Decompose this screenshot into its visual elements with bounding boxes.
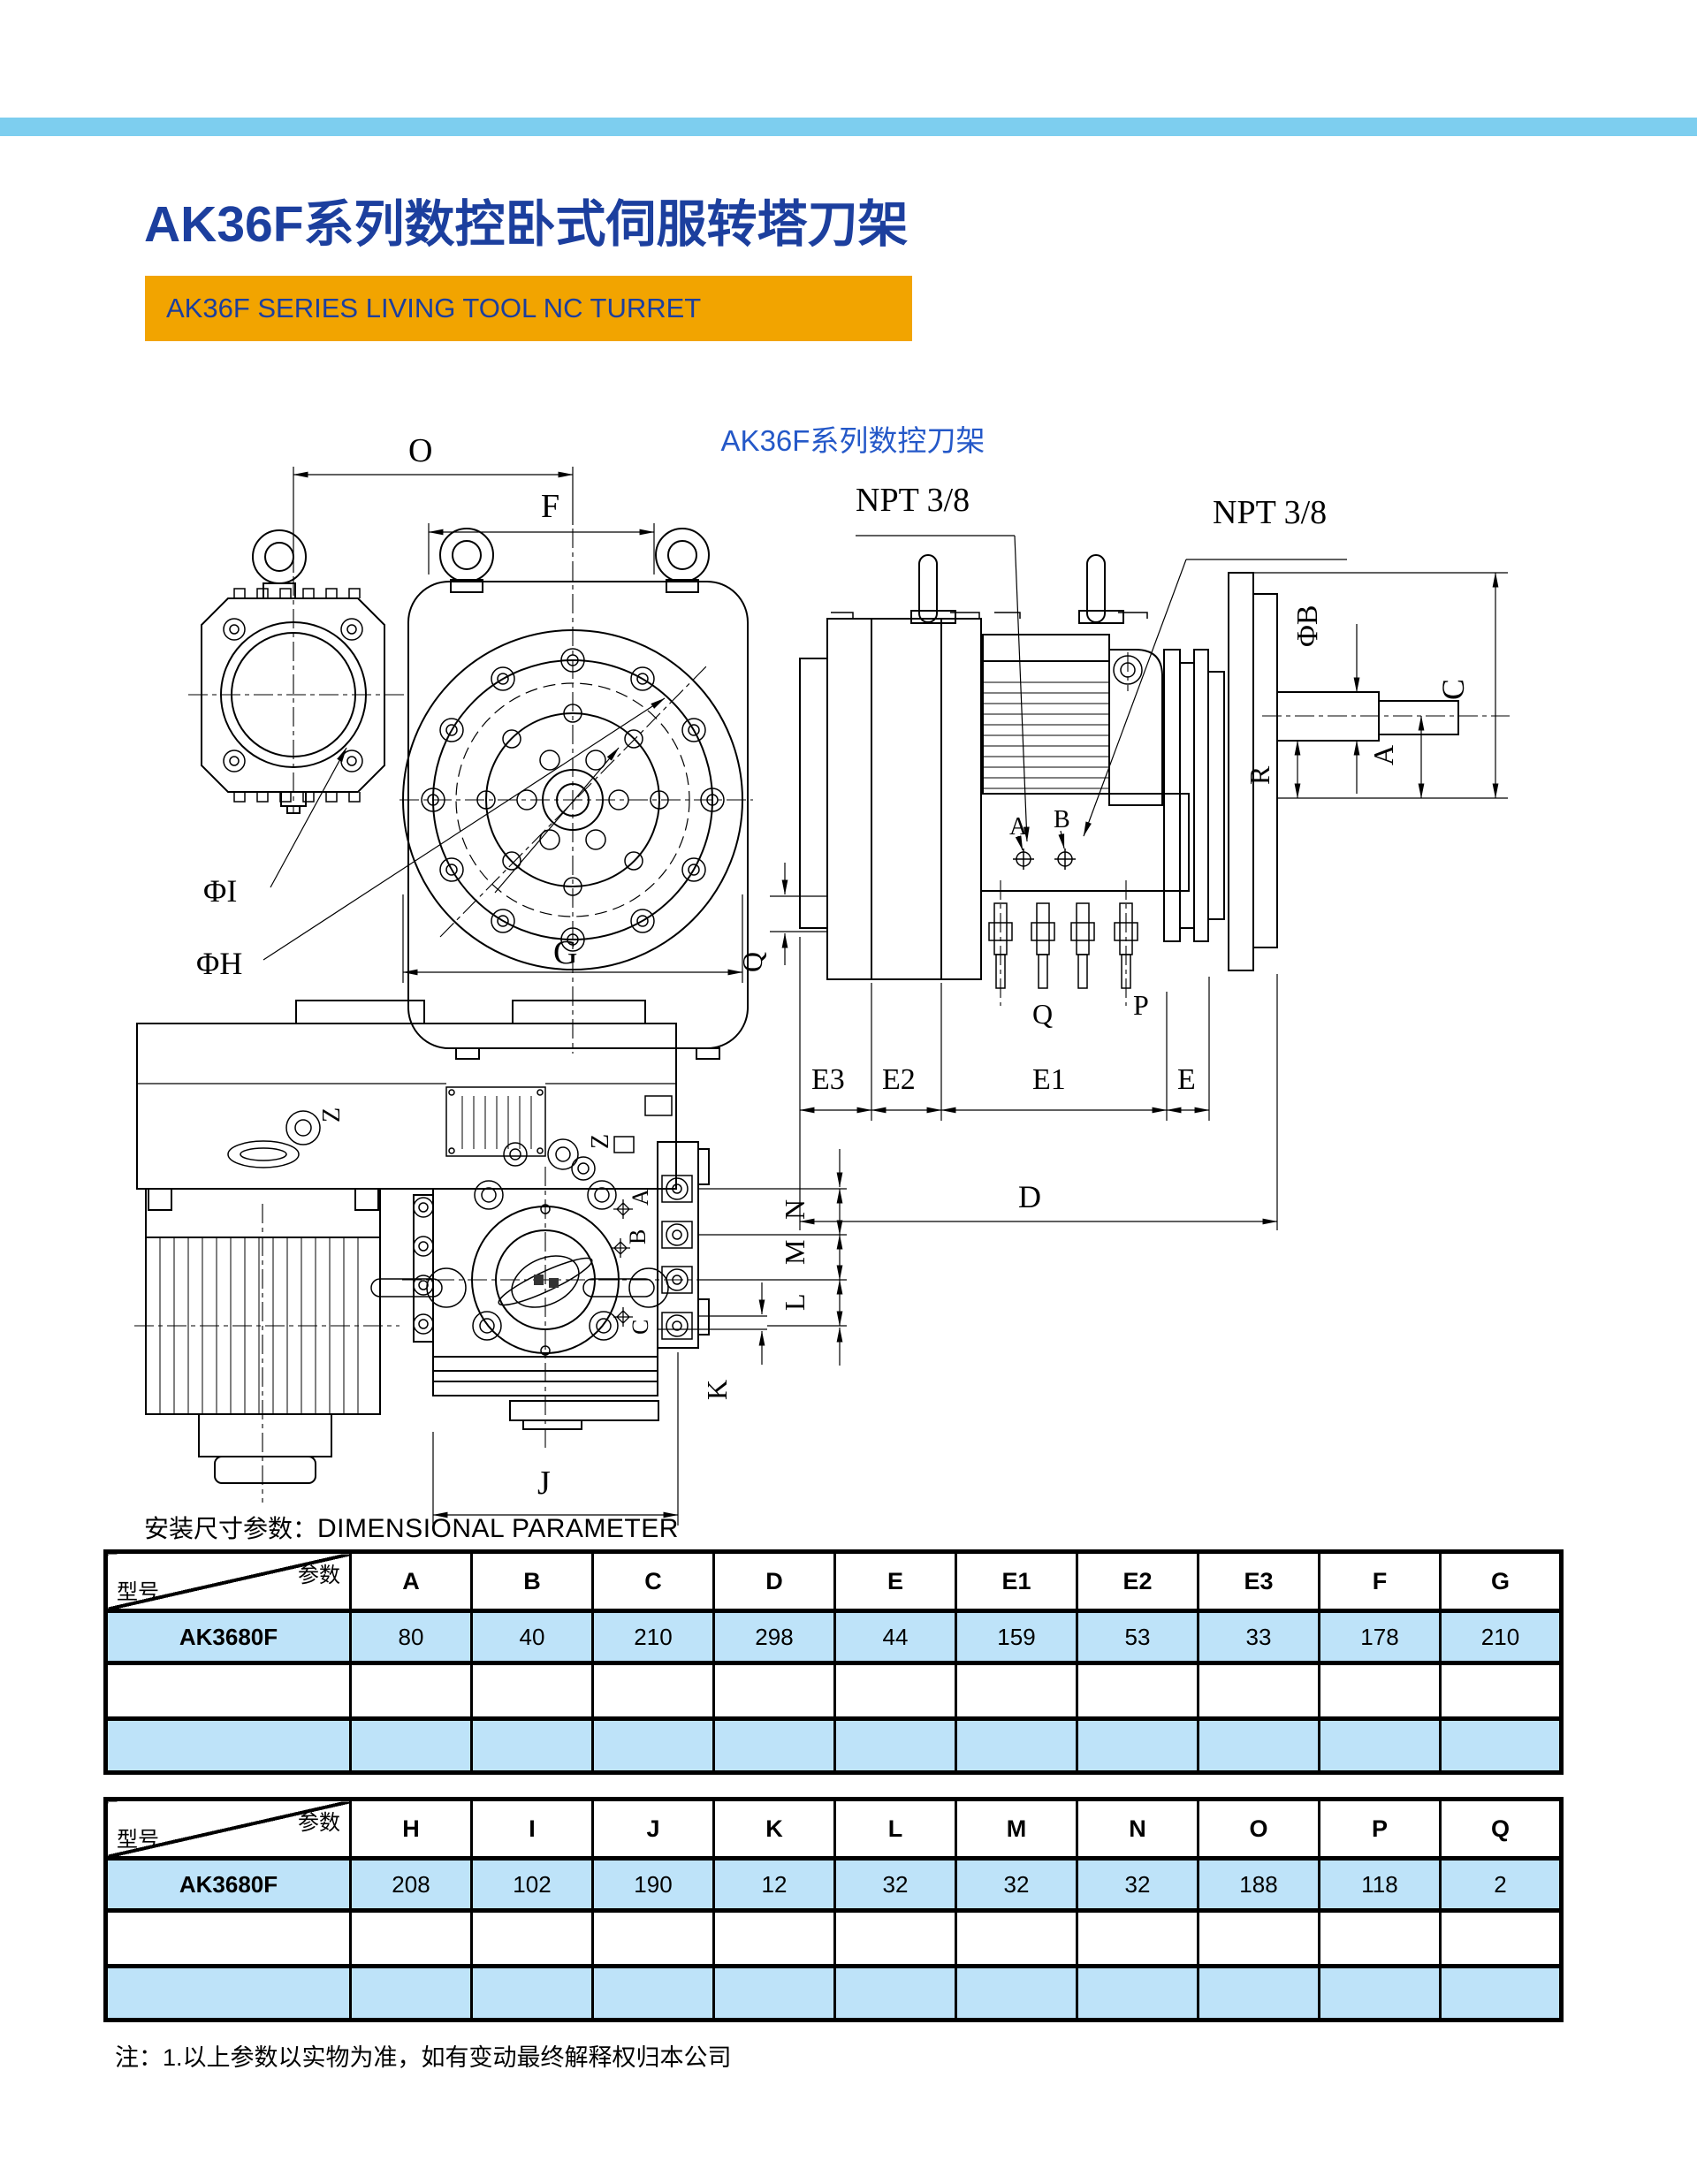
empty-cell [593,1967,714,2020]
col-header: H [351,1800,472,1859]
empty-cell [1199,1967,1320,2020]
empty-cell [472,1719,593,1773]
plan-view: Z [134,1001,847,1526]
value-cell: 2 [1441,1859,1562,1911]
corner-label-param: 参数 [298,1557,340,1588]
empty-cell [835,1967,956,2020]
value-cell: 33 [1199,1611,1320,1663]
dim-label-Z-upper: Z [318,1107,346,1122]
tool-station-bolts [662,1176,692,1339]
empty-cell [1441,1663,1562,1719]
dim-label-R: R [1244,765,1275,785]
value-cell: 44 [835,1611,956,1663]
dimension-table-1: 参数 型号 A B C D E E1 E2 E3 F G AK3680F 80 … [103,1549,1564,1775]
clamping-studs [989,903,1138,988]
model-cell: AK3680F [106,1611,351,1663]
col-header: E [835,1552,956,1611]
empty-cell [835,1911,956,1967]
dim-label-phiB: ΦB [1291,605,1324,647]
empty-cell [593,1719,714,1773]
empty-cell [472,1663,593,1719]
empty-cell [1199,1719,1320,1773]
catalog-page: AK36F系列数控卧式伺服转塔刀架 AK36F SERIES LIVING TO… [0,0,1697,2184]
empty-cell [1199,1663,1320,1719]
empty-cell [351,1663,472,1719]
empty-cell [472,1967,593,2020]
nml-dimensions [698,1149,847,1366]
footnote: 注：1.以上参数以实物为准，如有变动最终解释权归本公司 [115,2038,732,2073]
section-heading-zh: 安装尺寸参数： [144,1515,317,1542]
dim-label-D: D [1018,1179,1041,1214]
dim-label-A-vert: A [1367,745,1399,765]
npt-label: NPT 3/8 [1213,494,1327,531]
value-cell: 178 [1320,1611,1441,1663]
value-cell: 159 [956,1611,1077,1663]
col-header: G [1441,1552,1562,1611]
empty-cell [1077,1663,1199,1719]
nameplate [446,1087,545,1156]
empty-cell [351,1719,472,1773]
value-cell: 210 [593,1611,714,1663]
col-header: K [714,1800,835,1859]
dim-label-O: O [408,432,432,469]
value-cell: 298 [714,1611,835,1663]
empty-cell [1320,1911,1441,1967]
empty-cell [593,1663,714,1719]
dim-label-K: K [701,1380,733,1400]
col-header: A [351,1552,472,1611]
value-cell: 40 [472,1611,593,1663]
coolant-ports [1013,848,1076,870]
empty-cell [1077,1719,1199,1773]
section-heading-en: DIMENSIONAL PARAMETER [317,1514,679,1543]
dim-label-Q-side: Q [736,952,768,972]
dim-label-E: E [1177,1063,1196,1096]
empty-cell [1441,1719,1562,1773]
cad-drawing: O F G ΦI ΦH [115,407,1582,1538]
value-cell: 80 [351,1611,472,1663]
empty-cell [956,1911,1077,1967]
col-header: Q [1441,1800,1562,1859]
dim-label-F: F [541,488,559,525]
empty-cell [1441,1967,1562,2020]
eyebolt-icon [440,529,709,592]
dimension-table-2: 参数 型号 H I J K L M N O P Q AK3680F 208 10… [103,1797,1564,2022]
value-cell: 118 [1320,1859,1441,1911]
col-header: O [1199,1800,1320,1859]
empty-cell [714,1719,835,1773]
value-cell: 32 [835,1859,956,1911]
section-heading: 安装尺寸参数：DIMENSIONAL PARAMETER [144,1510,679,1545]
dim-label-phiI: ΦI [203,873,237,909]
col-header: C [593,1552,714,1611]
empty-cell [835,1719,956,1773]
empty-cell [956,1719,1077,1773]
dim-label-M: M [779,1240,810,1265]
empty-row [106,1719,1562,1773]
empty-row [106,1911,1562,1967]
corner-cell: 参数 型号 [106,1552,351,1611]
table-header-row: 参数 型号 A B C D E E1 E2 E3 F G [106,1552,1562,1611]
dim-label-phiH: ΦH [196,946,242,981]
empty-cell [1077,1967,1199,2020]
empty-cell [351,1911,472,1967]
front-view: O F G ΦI ΦH [188,432,753,1059]
series-banner: AK36F SERIES LIVING TOOL NC TURRET [145,276,912,341]
dim-label-P: P [1133,989,1149,1021]
empty-cell [1320,1967,1441,2020]
col-header: M [956,1800,1077,1859]
col-header: J [593,1800,714,1859]
value-cell: 188 [1199,1859,1320,1911]
empty-cell [106,1911,351,1967]
corner-label-model: 型号 [117,1822,159,1853]
dim-label-C: C [1435,679,1471,700]
station-label-C: C [628,1320,653,1335]
empty-cell [106,1719,351,1773]
series-banner-text: AK36F SERIES LIVING TOOL NC TURRET [145,293,701,324]
col-header: B [472,1552,593,1611]
dim-label-Q-stud: Q [1032,998,1053,1030]
value-cell: 190 [593,1859,714,1911]
front-dimensions [263,467,742,983]
empty-cell [1199,1911,1320,1967]
value-cell: 12 [714,1859,835,1911]
table-header-row: 参数 型号 H I J K L M N O P Q [106,1800,1562,1859]
empty-cell [714,1911,835,1967]
empty-cell [1320,1663,1441,1719]
dim-label-N: N [779,1199,810,1220]
page-title: AK36F系列数控卧式伺服转塔刀架 [144,184,909,256]
empty-row [106,1967,1562,2020]
corner-cell: 参数 型号 [106,1800,351,1859]
col-header: P [1320,1800,1441,1859]
col-header: D [714,1552,835,1611]
value-cell: 208 [351,1859,472,1911]
dim-label-E3: E3 [811,1063,845,1096]
col-header: N [1077,1800,1199,1859]
col-header: L [835,1800,956,1859]
empty-cell [593,1911,714,1967]
data-row: AK3680F 80 40 210 298 44 159 53 33 178 2… [106,1611,1562,1663]
dim-label-E1: E1 [1032,1063,1066,1096]
empty-cell [1441,1911,1562,1967]
corner-label-model: 型号 [117,1574,159,1605]
value-cell: 53 [1077,1611,1199,1663]
col-header: E3 [1199,1552,1320,1611]
npt-label: NPT 3/8 [856,482,970,519]
station-label-A: A [628,1189,653,1206]
col-header: E1 [956,1552,1077,1611]
corner-label-param: 参数 [298,1805,340,1836]
top-accent-bar [0,118,1697,136]
value-cell: 32 [1077,1859,1199,1911]
side-view: NPT 3/8 NPT 3/8 A B Q [736,482,1510,1230]
dim-label-E2: E2 [882,1063,916,1096]
col-header: E2 [1077,1552,1199,1611]
empty-cell [351,1967,472,2020]
dim-label-Z-lower: Z [587,1134,614,1149]
empty-cell [1077,1911,1199,1967]
data-row: AK3680F 208 102 190 12 32 32 32 188 118 … [106,1859,1562,1911]
empty-cell [106,1663,351,1719]
empty-cell [835,1663,956,1719]
empty-cell [956,1663,1077,1719]
empty-cell [714,1967,835,2020]
col-header: I [472,1800,593,1859]
col-header: F [1320,1552,1441,1611]
model-cell: AK3680F [106,1859,351,1911]
dim-label-G: G [553,934,577,971]
station-label-B: B [625,1229,651,1244]
empty-cell [714,1663,835,1719]
empty-cell [1320,1719,1441,1773]
empty-cell [956,1967,1077,2020]
value-cell: 32 [956,1859,1077,1911]
dim-label-L: L [779,1293,810,1311]
empty-cell [106,1967,351,2020]
port-label-B: B [1054,806,1070,833]
empty-row [106,1663,1562,1719]
dim-label-J: J [537,1465,551,1502]
value-cell: 210 [1441,1611,1562,1663]
empty-cell [472,1911,593,1967]
value-cell: 102 [472,1859,593,1911]
